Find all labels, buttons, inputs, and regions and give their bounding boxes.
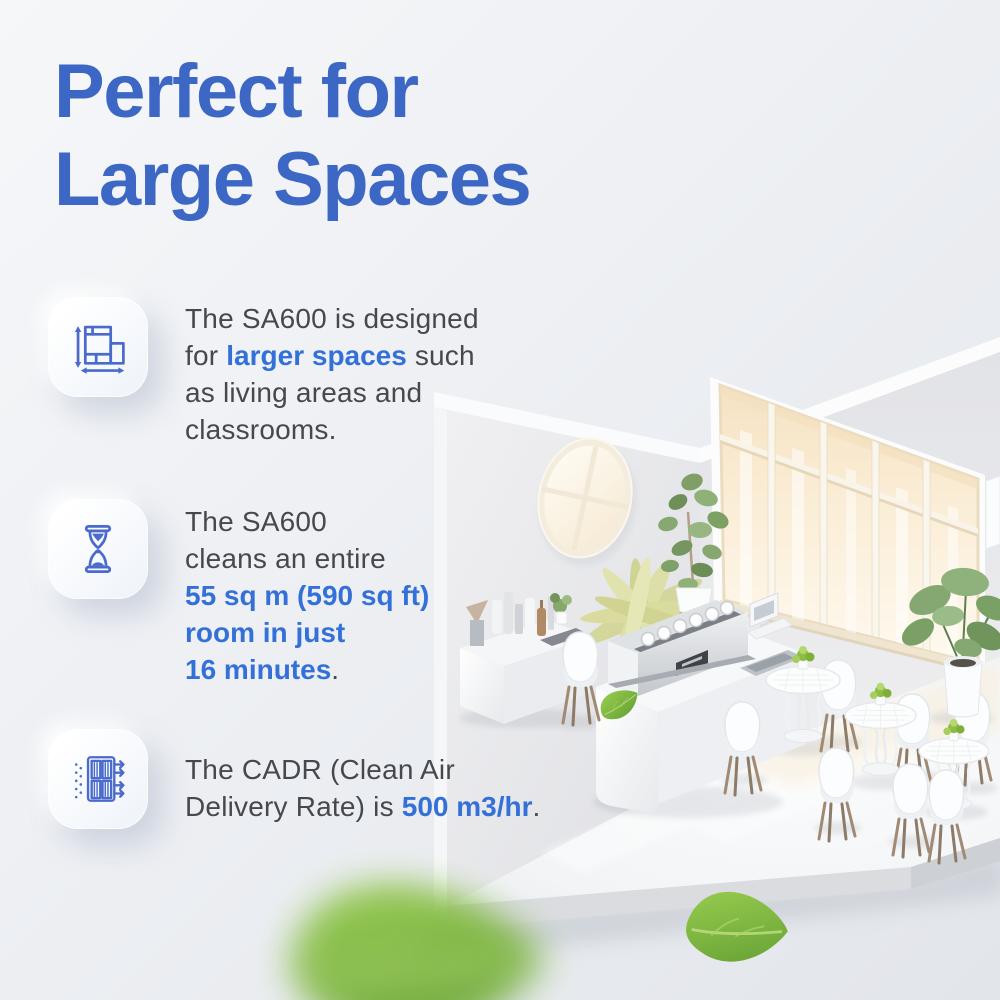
hourglass-icon xyxy=(69,520,127,578)
feature-text-clean-time: The SA600cleans an entire55 sq m (590 sq… xyxy=(185,503,429,688)
feature-card-clean-time xyxy=(48,499,148,599)
feature-card-cadr xyxy=(48,729,148,829)
feature-text-cadr: The CADR (Clean AirDelivery Rate) is 500… xyxy=(185,751,541,825)
page-title: Perfect for Large Spaces xyxy=(54,48,530,224)
feature-card-room-size xyxy=(48,297,148,397)
feature-text-room-size: The SA600 is designedfor larger spaces s… xyxy=(185,300,479,448)
floor-plan-dimensions-icon xyxy=(69,318,127,376)
title-line-2: Large Spaces xyxy=(54,136,530,224)
air-filter-flow-icon xyxy=(69,750,127,808)
promo-artwork: Perfect for Large Spaces The SA600 is de… xyxy=(0,0,1000,1000)
title-line-1: Perfect for xyxy=(54,48,530,136)
wall-panel xyxy=(986,476,1000,549)
